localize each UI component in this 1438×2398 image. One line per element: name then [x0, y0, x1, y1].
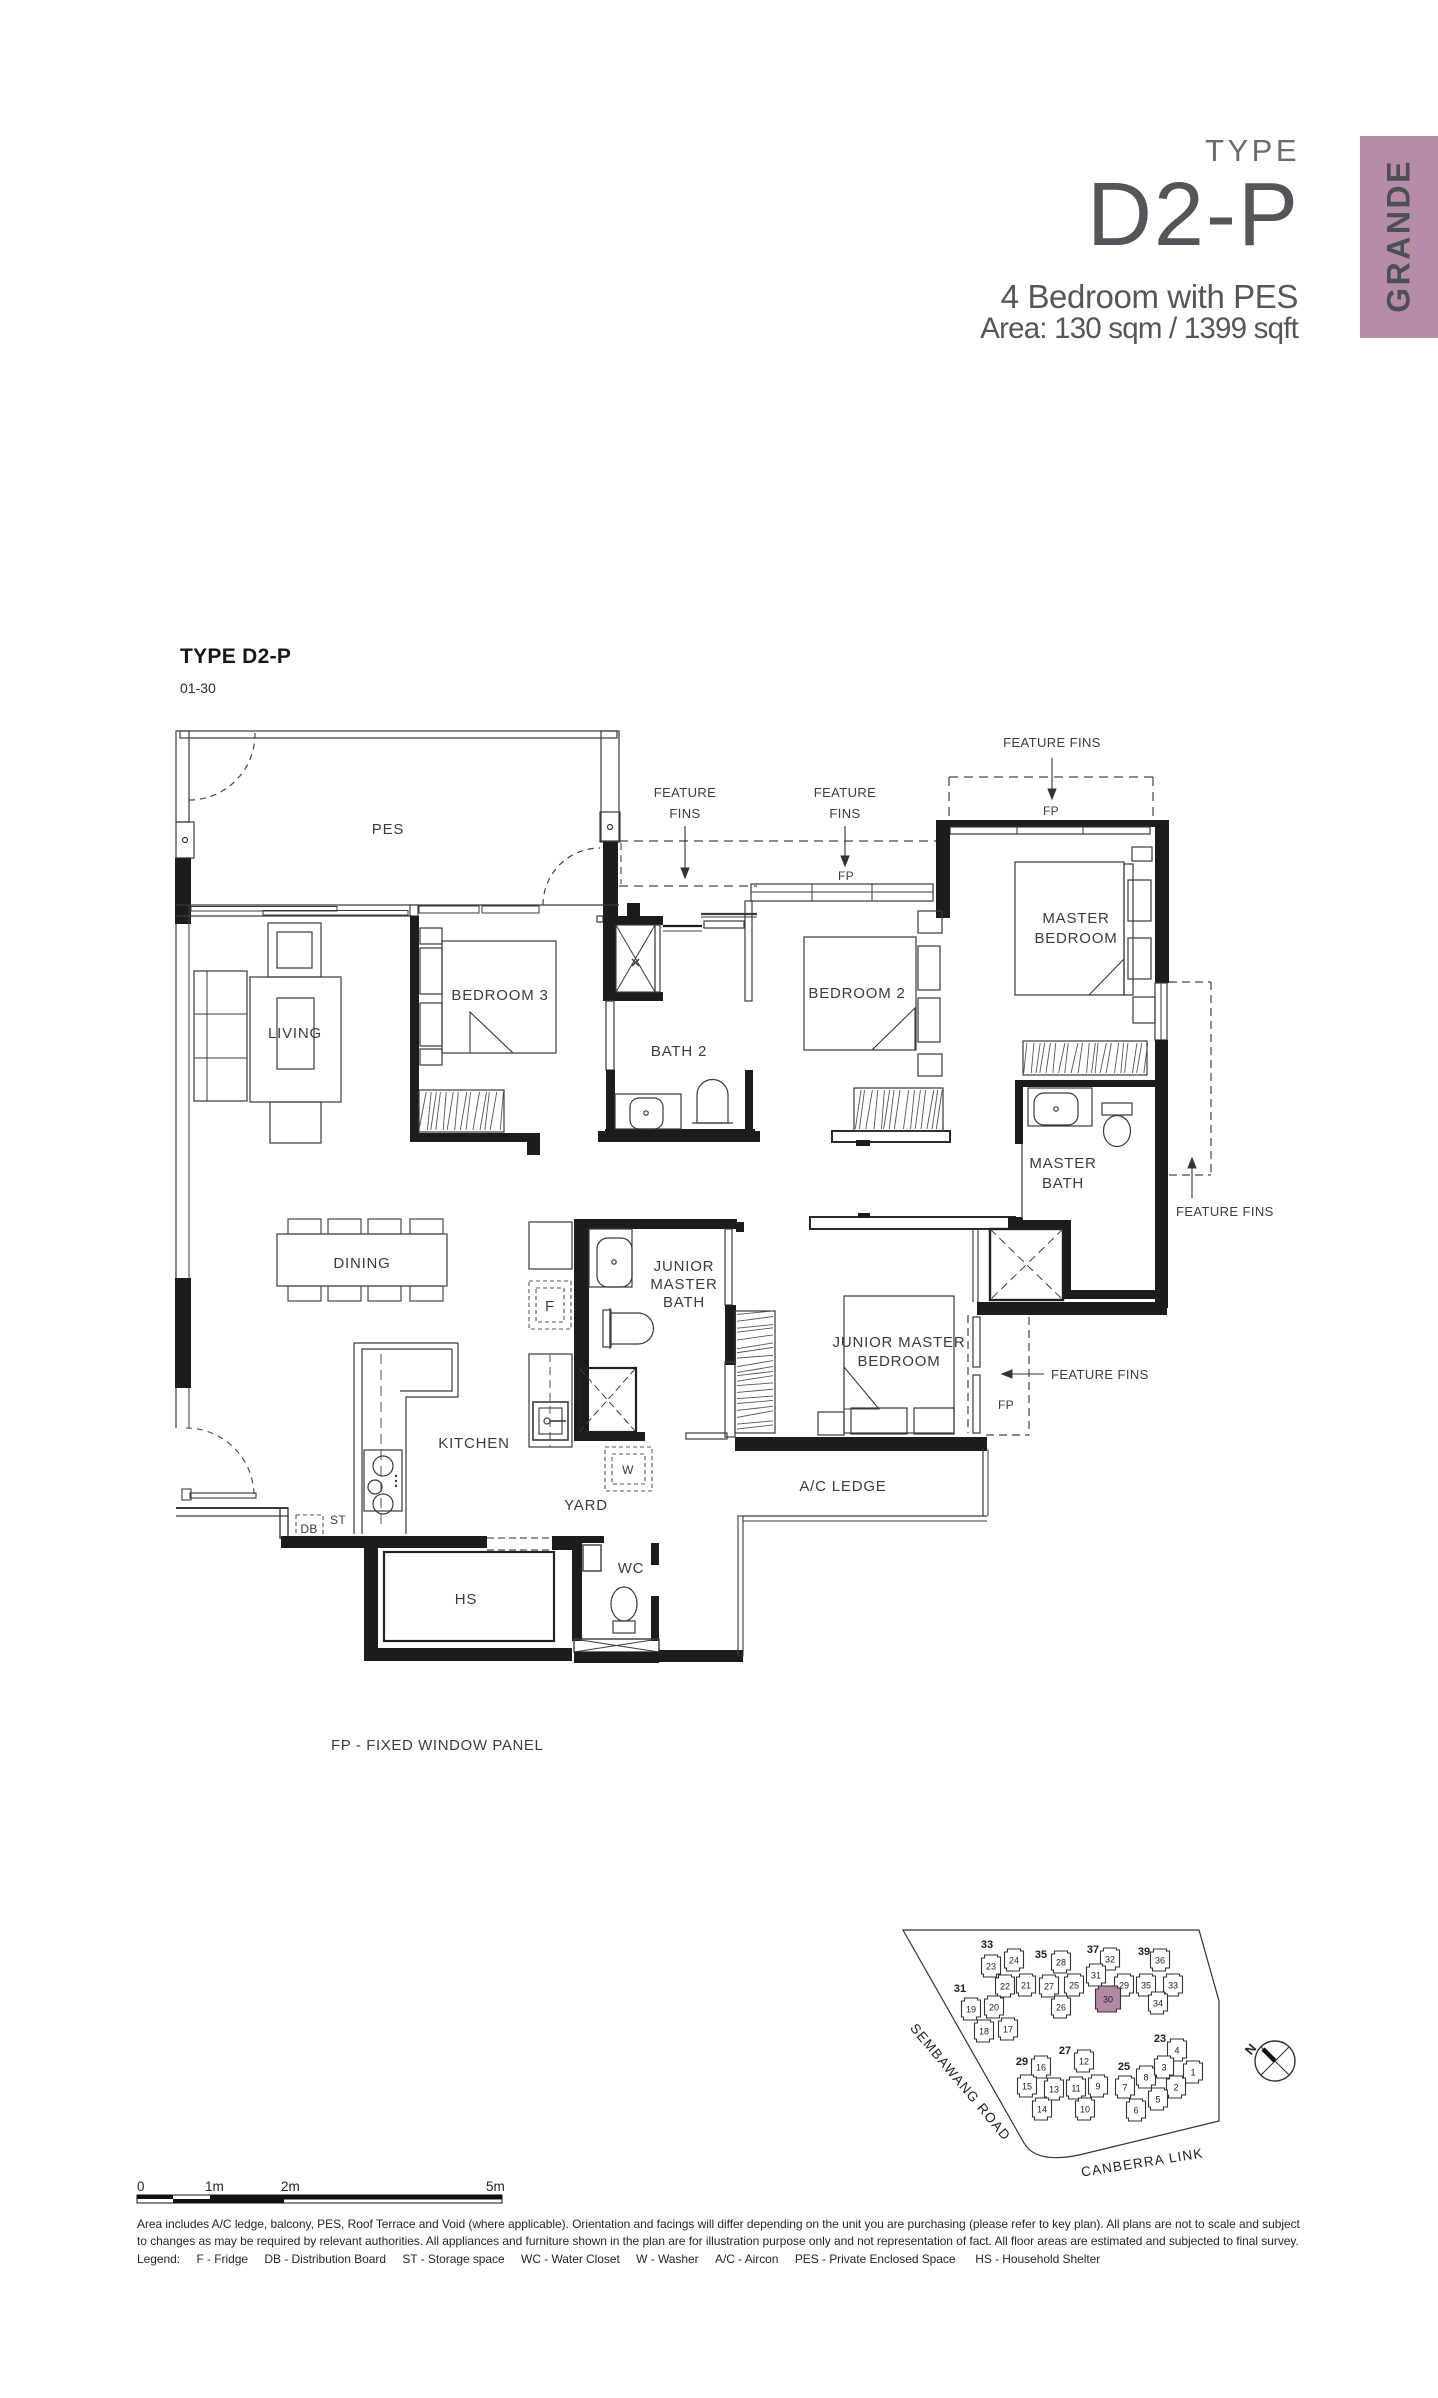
svg-text:35: 35: [1035, 1949, 1047, 1961]
svg-text:15: 15: [1022, 2082, 1032, 2092]
svg-text:FINS: FINS: [829, 806, 860, 821]
svg-text:KITCHEN: KITCHEN: [438, 1435, 509, 1452]
svg-text:37: 37: [1087, 1944, 1099, 1956]
svg-text:36: 36: [1155, 1956, 1165, 1966]
svg-text:8: 8: [1143, 2073, 1148, 2083]
svg-text:FEATURE: FEATURE: [814, 785, 877, 800]
svg-text:26: 26: [1056, 2003, 1066, 2013]
svg-text:1m: 1m: [205, 2179, 224, 2194]
svg-text:FEATURE FINS: FEATURE FINS: [1003, 735, 1101, 750]
svg-text:21: 21: [1021, 1981, 1031, 1991]
svg-text:28: 28: [1056, 1958, 1066, 1968]
svg-text:MASTER: MASTER: [650, 1276, 717, 1293]
svg-text:JUNIOR: JUNIOR: [654, 1258, 715, 1275]
svg-text:SEMBAWANG ROAD: SEMBAWANG ROAD: [907, 2021, 1014, 2144]
svg-text:YARD: YARD: [564, 1497, 608, 1514]
svg-text:DINING: DINING: [333, 1255, 390, 1272]
svg-text:W: W: [622, 1463, 634, 1477]
svg-text:MASTER: MASTER: [1042, 910, 1109, 927]
svg-text:23: 23: [1154, 2033, 1166, 2045]
svg-text:34: 34: [1153, 1999, 1163, 2009]
svg-text:FEATURE FINS: FEATURE FINS: [1051, 1367, 1149, 1382]
svg-text:35: 35: [1141, 1981, 1151, 1991]
svg-text:20: 20: [989, 2003, 999, 2013]
svg-text:33: 33: [981, 1939, 993, 1951]
svg-text:33: 33: [1168, 1981, 1178, 1991]
svg-text:2: 2: [1173, 2083, 1178, 2093]
svg-text:0: 0: [137, 2179, 145, 2194]
svg-text:BEDROOM 2: BEDROOM 2: [808, 985, 905, 1002]
svg-text:MASTER: MASTER: [1029, 1155, 1096, 1172]
svg-text:13: 13: [1049, 2085, 1059, 2095]
svg-text:A/C LEDGE: A/C LEDGE: [799, 1478, 886, 1495]
svg-text:BATH: BATH: [1042, 1175, 1084, 1192]
svg-text:FP: FP: [1043, 804, 1059, 818]
svg-text:30: 30: [1103, 1995, 1113, 2005]
svg-text:5: 5: [1155, 2095, 1160, 2105]
svg-text:FP: FP: [998, 1398, 1014, 1412]
svg-text:16: 16: [1036, 2063, 1046, 2073]
svg-text:39: 39: [1138, 1946, 1150, 1958]
svg-text:12: 12: [1079, 2057, 1089, 2067]
svg-text:DB: DB: [300, 1522, 317, 1536]
svg-text:1: 1: [1190, 2068, 1195, 2078]
svg-text:BEDROOM: BEDROOM: [1034, 930, 1117, 947]
svg-text:5m: 5m: [486, 2179, 505, 2194]
svg-text:JUNIOR MASTER: JUNIOR MASTER: [833, 1334, 966, 1351]
svg-text:PES: PES: [372, 821, 404, 838]
svg-text:25: 25: [1069, 1981, 1079, 1991]
svg-text:WC: WC: [618, 1560, 645, 1577]
svg-text:18: 18: [979, 2027, 989, 2037]
svg-text:FINS: FINS: [669, 806, 700, 821]
svg-text:N: N: [1242, 2041, 1260, 2058]
svg-text:2m: 2m: [281, 2179, 300, 2194]
svg-text:FEATURE: FEATURE: [654, 785, 717, 800]
svg-text:BATH 2: BATH 2: [651, 1043, 707, 1060]
svg-text:14: 14: [1037, 2105, 1047, 2115]
svg-text:ST: ST: [330, 1513, 346, 1527]
svg-text:BATH: BATH: [663, 1294, 705, 1311]
svg-text:24: 24: [1009, 1956, 1019, 1966]
svg-text:25: 25: [1118, 2061, 1130, 2073]
svg-text:HS: HS: [455, 1591, 477, 1608]
svg-text:31: 31: [1091, 1971, 1101, 1981]
svg-text:23: 23: [986, 1962, 996, 1972]
svg-text:FP: FP: [838, 869, 854, 883]
svg-text:4: 4: [1174, 2046, 1179, 2056]
svg-text:27: 27: [1059, 2045, 1071, 2057]
svg-text:9: 9: [1095, 2082, 1100, 2092]
svg-text:LIVING: LIVING: [268, 1025, 322, 1042]
svg-text:6: 6: [1133, 2106, 1138, 2116]
svg-text:32: 32: [1105, 1955, 1115, 1965]
svg-text:27: 27: [1044, 1982, 1054, 1992]
svg-text:FEATURE FINS: FEATURE FINS: [1176, 1204, 1274, 1219]
svg-text:F: F: [545, 1298, 555, 1315]
svg-text:11: 11: [1071, 2084, 1080, 2094]
svg-text:31: 31: [954, 1983, 966, 1995]
svg-text:BEDROOM: BEDROOM: [857, 1353, 940, 1370]
svg-text:3: 3: [1161, 2063, 1166, 2073]
svg-text:10: 10: [1080, 2105, 1090, 2115]
svg-text:17: 17: [1003, 2025, 1013, 2035]
svg-text:7: 7: [1122, 2083, 1127, 2093]
svg-text:BEDROOM 3: BEDROOM 3: [451, 987, 548, 1004]
svg-text:22: 22: [1000, 1982, 1010, 1992]
svg-text:29: 29: [1016, 2056, 1028, 2068]
svg-text:19: 19: [966, 2005, 976, 2015]
